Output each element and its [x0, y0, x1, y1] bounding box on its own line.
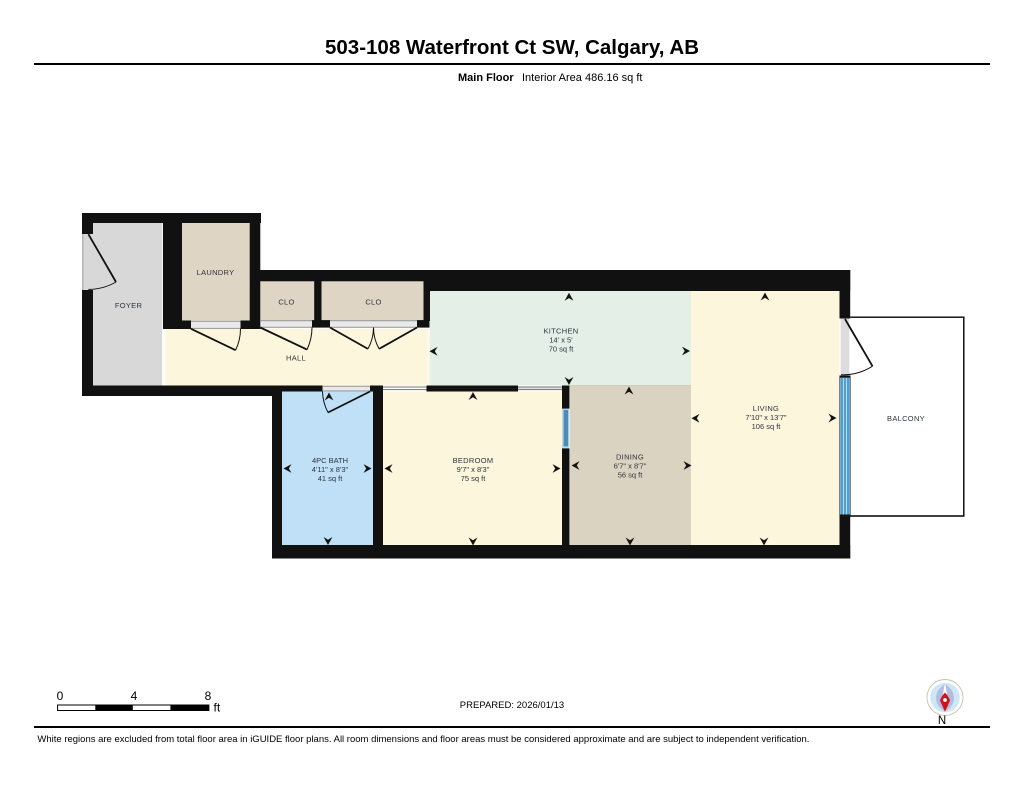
svg-text:CLO: CLO — [278, 298, 294, 307]
svg-text:106 sq ft: 106 sq ft — [752, 422, 782, 431]
svg-text:KITCHEN: KITCHEN — [543, 326, 578, 335]
svg-text:6'7" x 8'7": 6'7" x 8'7" — [614, 462, 647, 471]
svg-text:8: 8 — [205, 689, 212, 703]
svg-text:4'11" x 8'3": 4'11" x 8'3" — [312, 465, 349, 474]
svg-text:PREPARED: 2026/01/13: PREPARED: 2026/01/13 — [460, 700, 564, 711]
svg-text:BALCONY: BALCONY — [887, 414, 925, 423]
svg-text:56 sq ft: 56 sq ft — [618, 471, 644, 480]
svg-text:7'10" x 13'7": 7'10" x 13'7" — [745, 413, 786, 422]
svg-text:41 sq ft: 41 sq ft — [318, 474, 344, 483]
svg-text:LIVING: LIVING — [753, 404, 779, 413]
svg-text:DINING: DINING — [616, 453, 644, 462]
svg-text:CLO: CLO — [365, 298, 381, 307]
svg-text:4: 4 — [131, 689, 138, 703]
svg-text:14' x 5': 14' x 5' — [549, 335, 573, 344]
svg-text:9'7" x 8'3": 9'7" x 8'3" — [457, 465, 490, 474]
svg-text:0: 0 — [57, 689, 64, 703]
svg-text:70 sq ft: 70 sq ft — [549, 344, 575, 353]
svg-text:HALL: HALL — [286, 354, 306, 363]
svg-text:75 sq ft: 75 sq ft — [461, 474, 487, 483]
svg-text:4PC BATH: 4PC BATH — [312, 456, 348, 465]
svg-text:FOYER: FOYER — [115, 301, 143, 310]
svg-text:BEDROOM: BEDROOM — [453, 456, 494, 465]
svg-text:LAUNDRY: LAUNDRY — [197, 268, 235, 277]
svg-text:ft: ft — [214, 701, 221, 715]
